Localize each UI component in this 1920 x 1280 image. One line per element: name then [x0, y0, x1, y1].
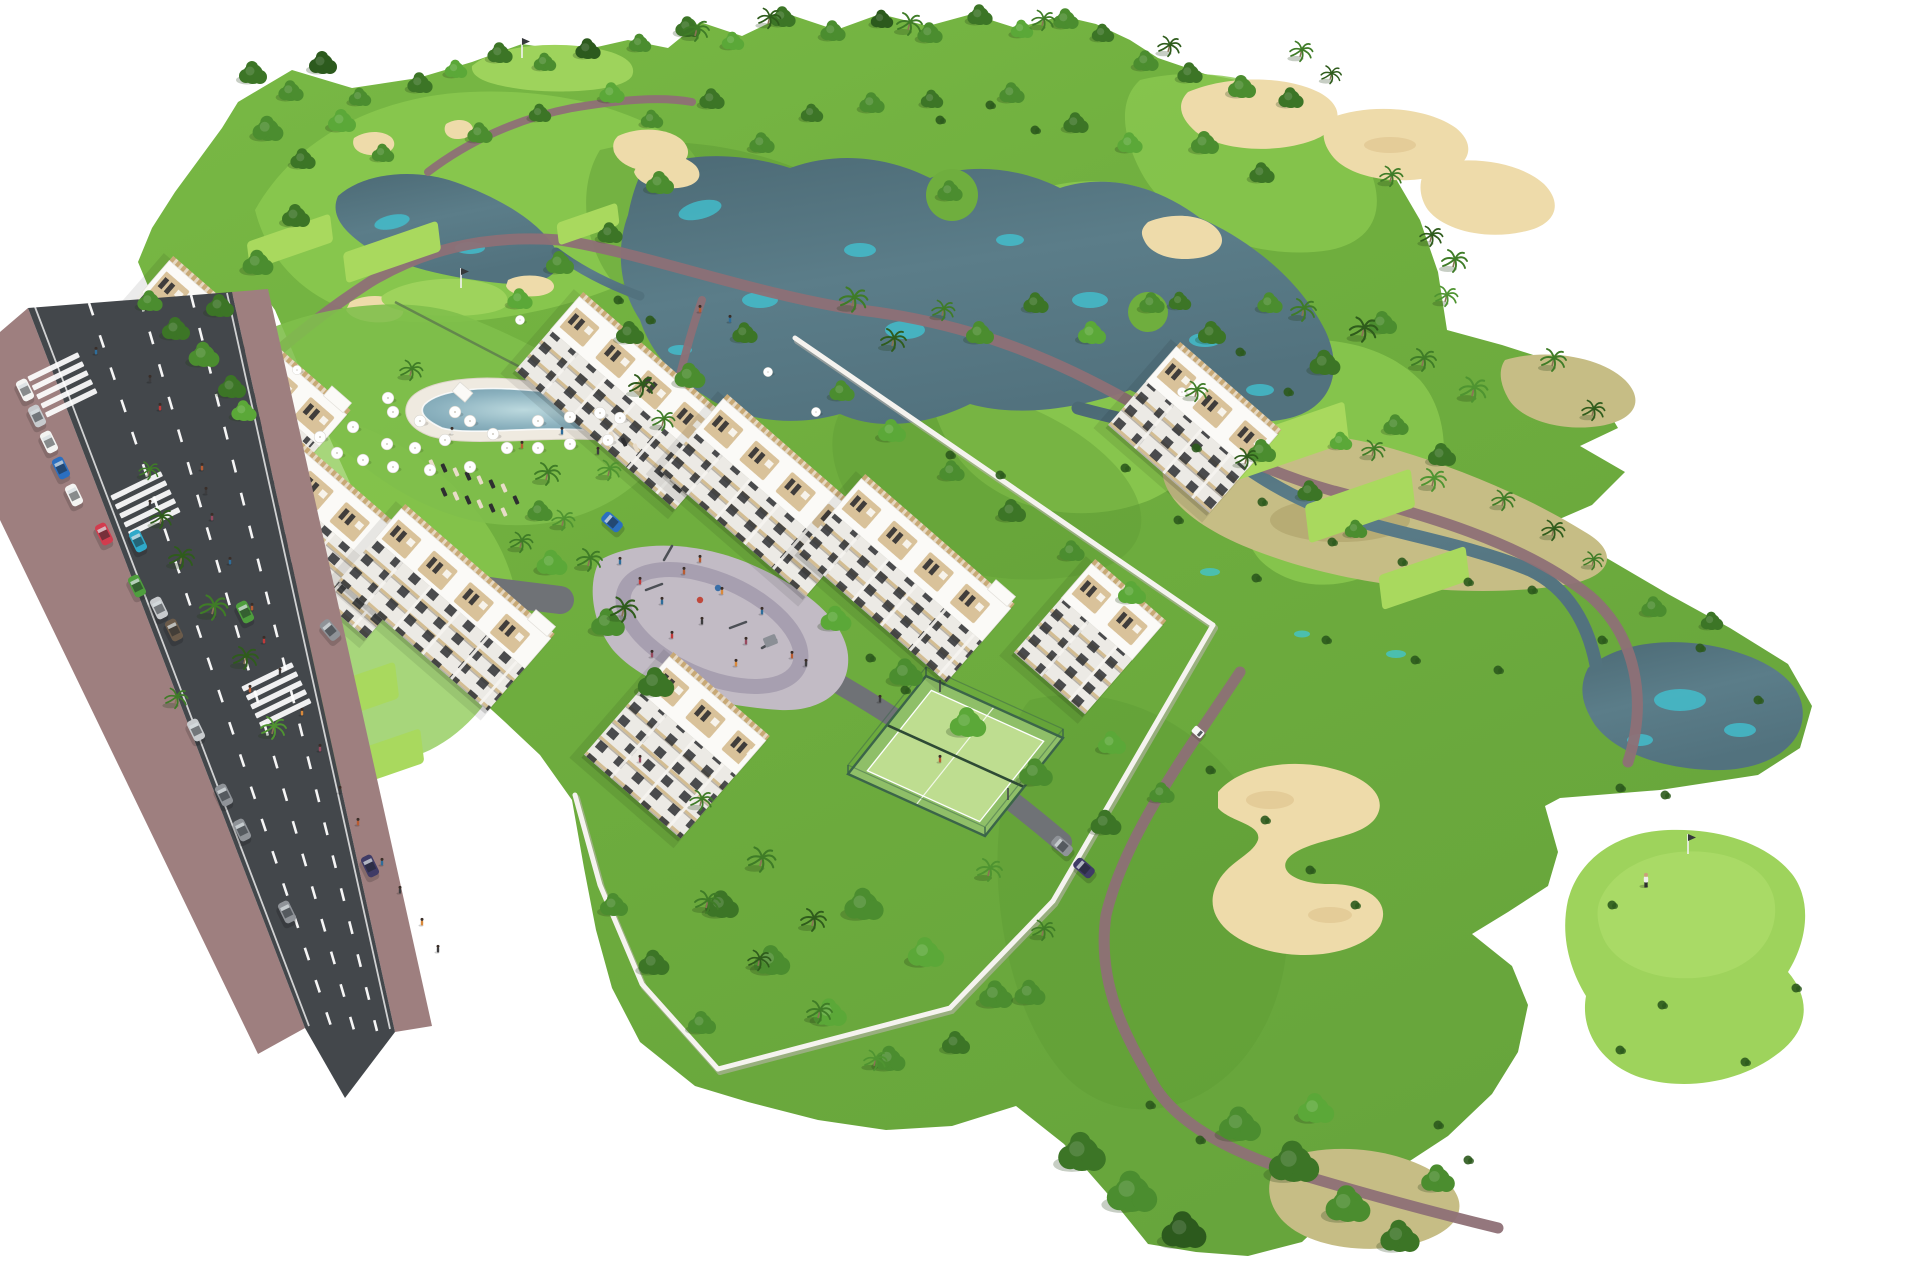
play-dot — [715, 585, 721, 591]
tree-icon — [868, 10, 893, 29]
tree-icon — [626, 34, 651, 53]
golf-resort-render: Aerial 3D render of a golf resort with w… — [0, 0, 1920, 1280]
tree-icon — [485, 42, 513, 63]
person — [435, 945, 440, 954]
palm-tree-icon — [1319, 66, 1341, 84]
palm-tree-icon — [1439, 250, 1467, 272]
tree-icon — [1051, 8, 1079, 29]
tree-icon — [965, 4, 993, 25]
tree-icon — [442, 60, 467, 79]
tree-icon — [818, 20, 846, 41]
bush-icon — [1661, 791, 1672, 800]
person — [419, 918, 424, 927]
tree-icon — [306, 51, 337, 75]
bush-icon — [1464, 1156, 1475, 1165]
aerial-site-plan: Aerial 3D render of a golf resort with w… — [0, 0, 1920, 1280]
palm-tree-icon — [1155, 37, 1180, 57]
bush-icon — [1792, 984, 1803, 993]
palm-tree-icon — [1287, 42, 1312, 62]
play-dot — [697, 597, 703, 603]
tree-icon — [236, 61, 267, 85]
tree-icon — [573, 38, 601, 59]
tree-icon — [1008, 20, 1033, 39]
